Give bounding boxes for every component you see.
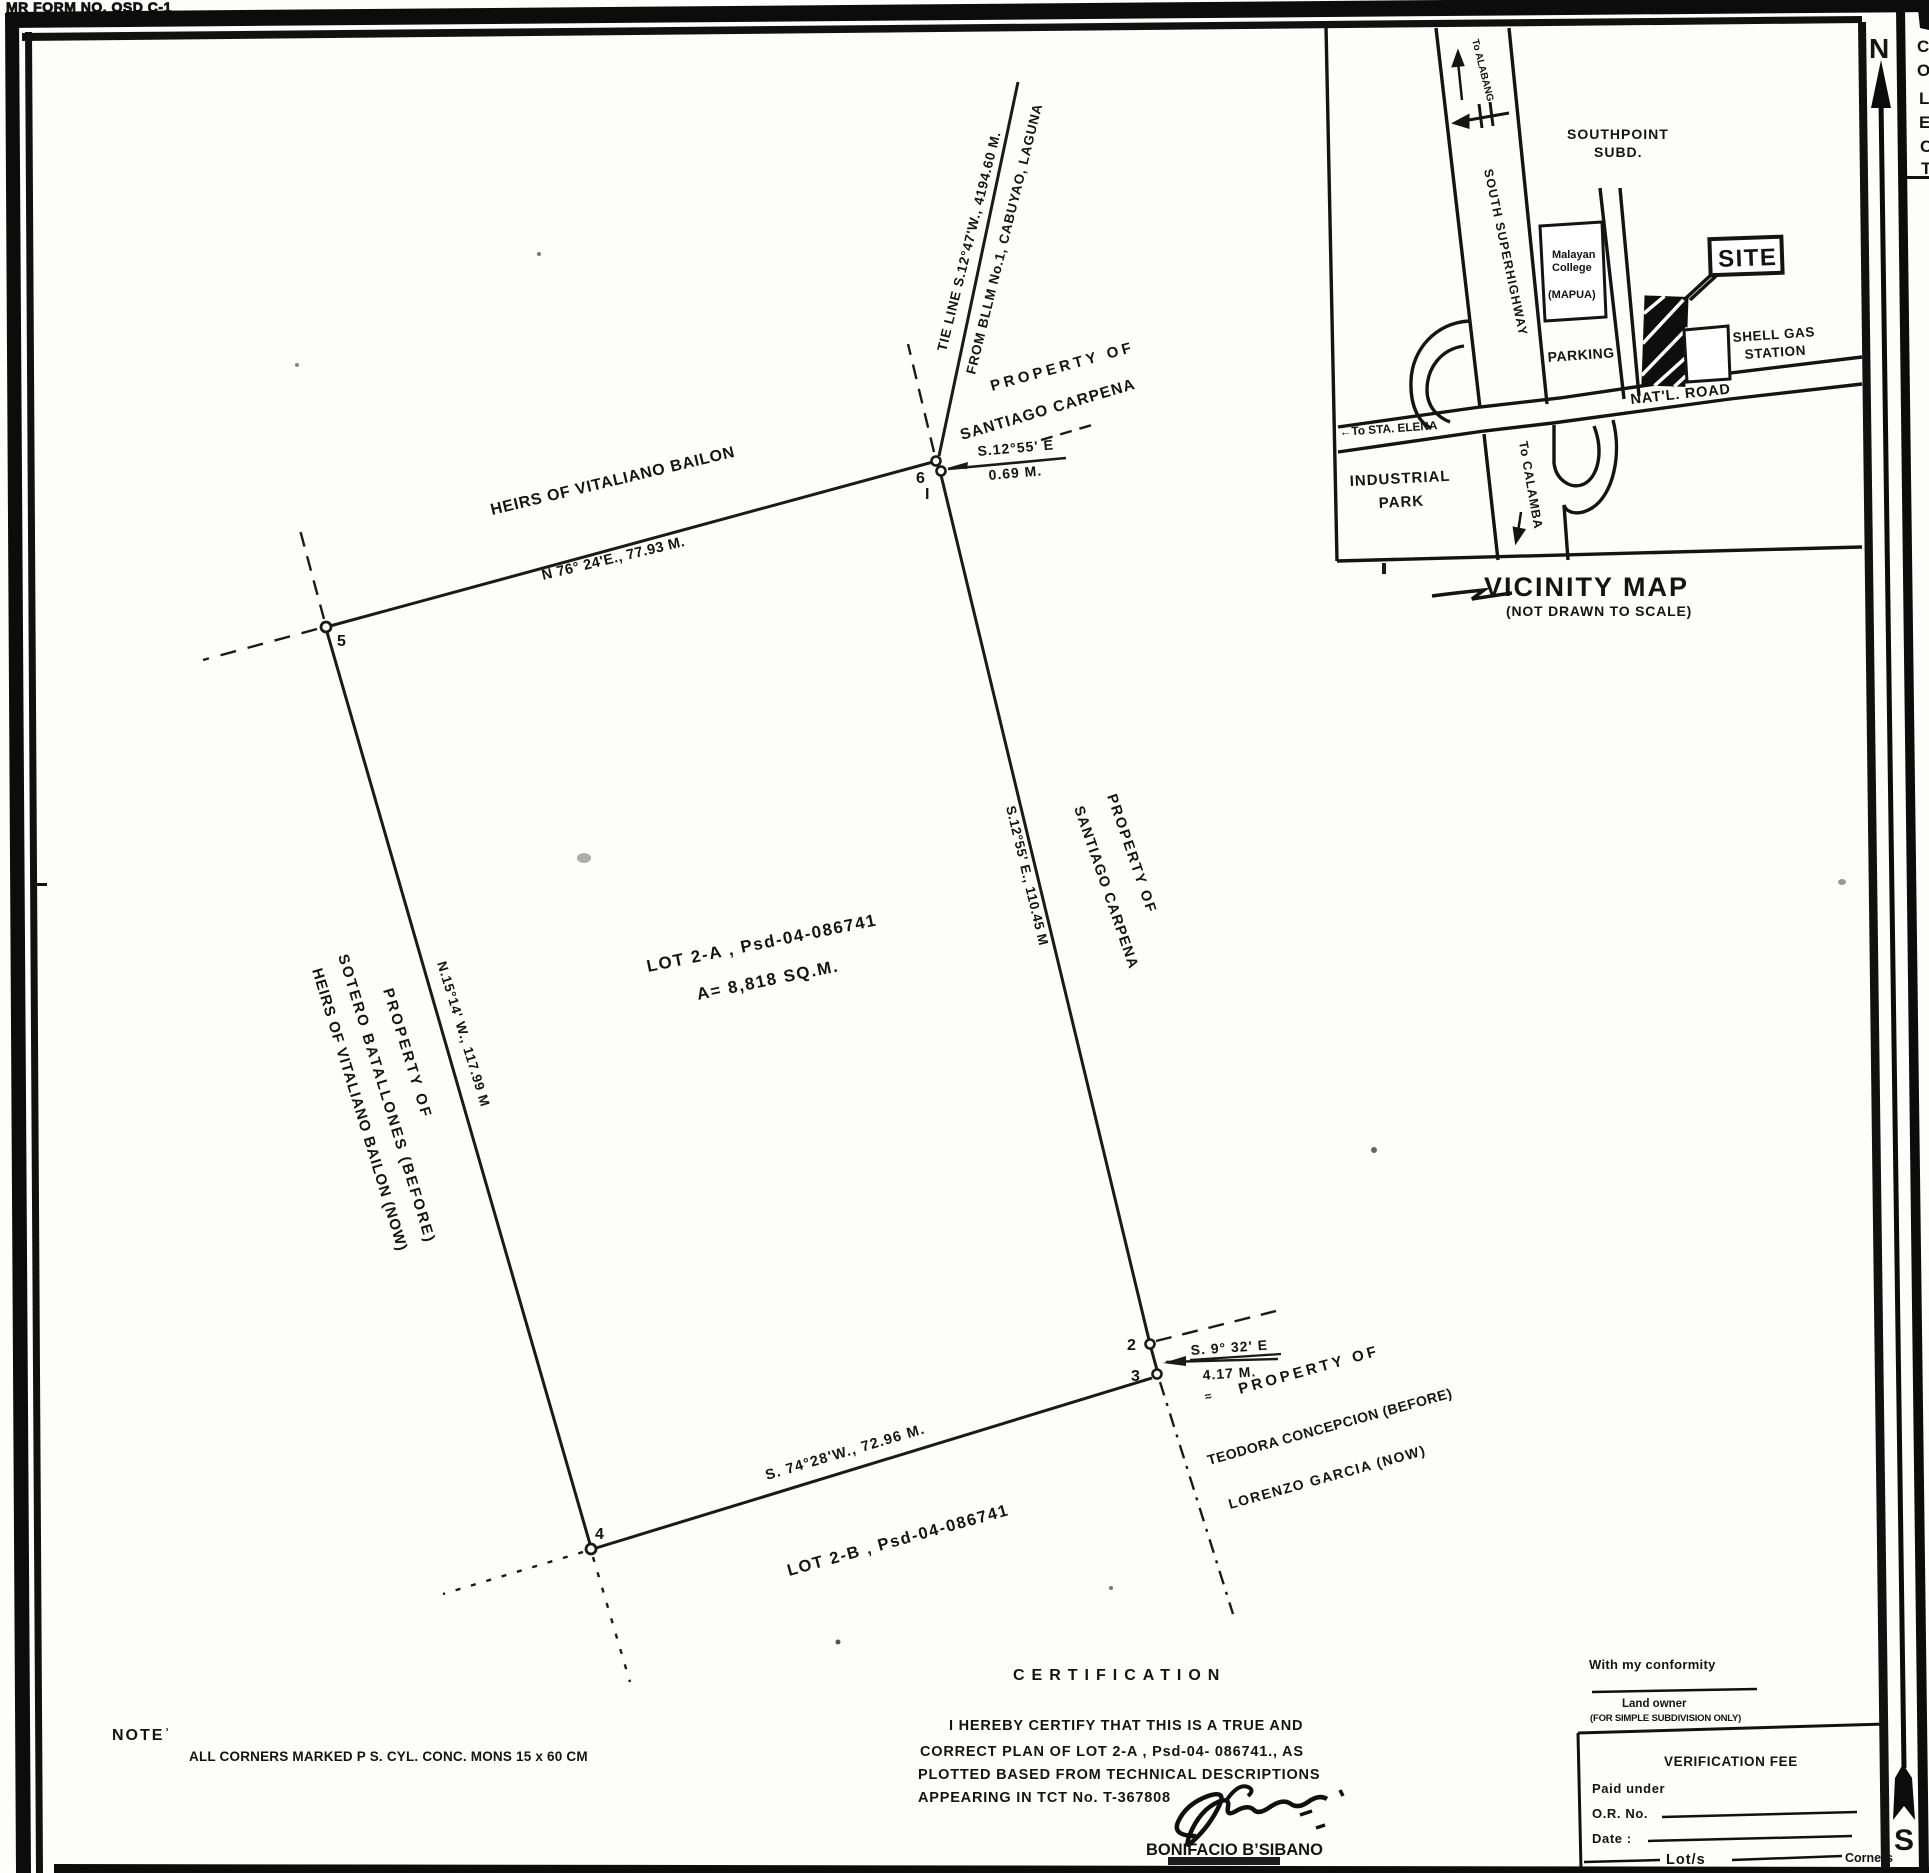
svg-text:SUBD.: SUBD. (1594, 144, 1643, 160)
svg-text:I HEREBY CERTIFY THAT THIS IS: I HEREBY CERTIFY THAT THIS IS A TRUE AND (949, 1718, 1303, 1734)
svg-text:APPEARING IN TCT No. T-367808: APPEARING IN TCT No. T-367808 (918, 1790, 1171, 1806)
svg-text:PLOTTED BASED FROM TECHNICAL D: PLOTTED BASED FROM TECHNICAL DESCRIPTION… (918, 1767, 1320, 1783)
svg-text:C: C (1917, 37, 1929, 56)
svg-text:Lot/s: Lot/s (1666, 1852, 1706, 1868)
svg-text:S: S (1894, 1824, 1914, 1857)
svg-text:Land owner: Land owner (1622, 1698, 1687, 1710)
svg-text:T: T (1921, 159, 1929, 178)
svg-text:SITE: SITE (1718, 244, 1778, 273)
svg-text:(FOR SIMPLE SUBDIVISION ONLY): (FOR SIMPLE SUBDIVISION ONLY) (1590, 1713, 1741, 1724)
svg-text:(MAPUA): (MAPUA) (1548, 289, 1596, 301)
svg-text:SOUTHPOINT: SOUTHPOINT (1567, 126, 1669, 142)
svg-text:3: 3 (1131, 1368, 1140, 1385)
svg-text:Date :: Date : (1592, 1831, 1632, 1846)
svg-text:Malayan: Malayan (1552, 249, 1596, 261)
svg-text:PARK: PARK (1378, 493, 1424, 512)
svg-text:CORRECT PLAN OF LOT 2-A , Psd-: CORRECT PLAN OF LOT 2-A , Psd-04- 086741… (920, 1744, 1304, 1760)
svg-text:2: 2 (1127, 1337, 1136, 1354)
svg-text:NOTEʾ: NOTEʾ (112, 1727, 172, 1744)
svg-text:College: College (1552, 262, 1592, 274)
svg-text:O: O (1917, 61, 1929, 80)
svg-text:N: N (1869, 33, 1889, 64)
svg-text:O.R. No.: O.R. No. (1592, 1806, 1648, 1821)
svg-text:Corners: Corners (1845, 1851, 1893, 1865)
svg-text:I: I (925, 486, 929, 503)
svg-text:VICINITY MAP: VICINITY MAP (1484, 572, 1689, 602)
svg-text:L: L (1919, 89, 1929, 108)
svg-text:CERTIFICATION: CERTIFICATION (1013, 1667, 1226, 1684)
svg-text:4: 4 (595, 1526, 604, 1543)
svg-text:Paid under: Paid under (1592, 1781, 1665, 1796)
svg-text:With my conformity: With my conformity (1589, 1657, 1716, 1672)
svg-text:ALL CORNERS MARKED P S. CYL. C: ALL CORNERS MARKED P S. CYL. CONC. MONS … (189, 1749, 588, 1764)
svg-text:(NOT DRAWN TO SCALE): (NOT DRAWN TO SCALE) (1506, 603, 1692, 619)
svg-text:6: 6 (916, 470, 925, 487)
svg-text:5: 5 (337, 633, 346, 650)
svg-text:E: E (1919, 113, 1929, 132)
svg-text:VERIFICATION FEE: VERIFICATION FEE (1664, 1754, 1798, 1769)
svg-text:BONIFACIO B’SIBANO: BONIFACIO B’SIBANO (1146, 1841, 1323, 1859)
svg-text:C: C (1920, 137, 1929, 156)
